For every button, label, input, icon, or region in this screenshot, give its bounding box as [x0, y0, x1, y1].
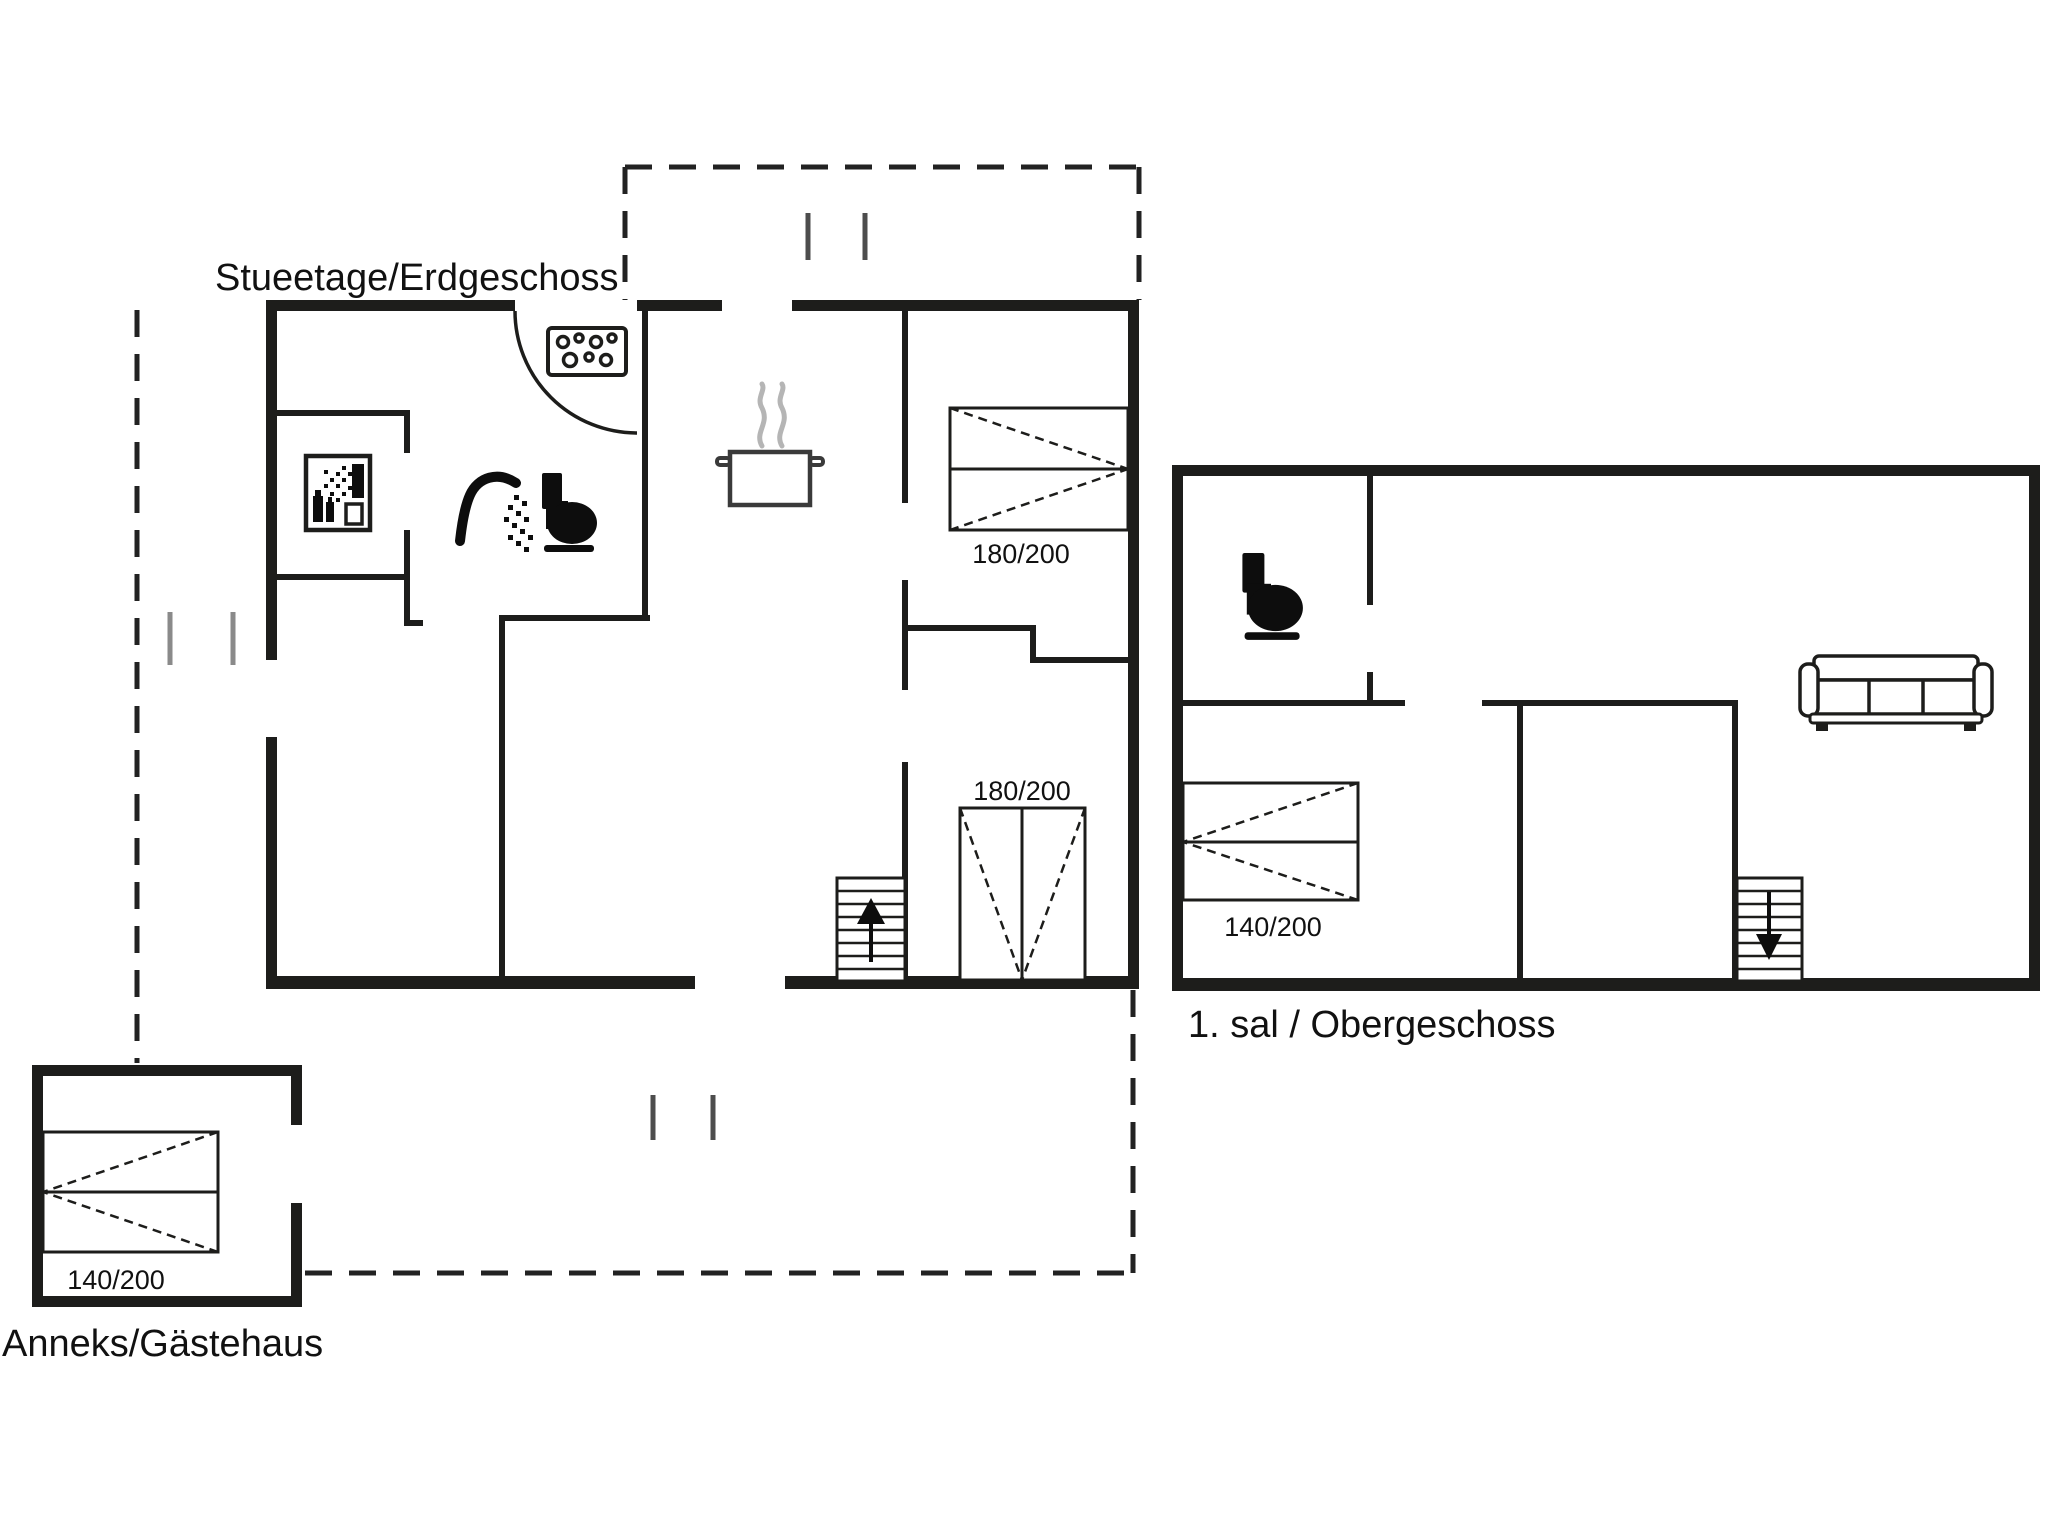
- bed-size-label: 140/200: [1224, 912, 1322, 942]
- floor-plan-drawing: 180/200 180/200 Stueetage/Erdgeschoss: [0, 0, 2048, 1536]
- upper-floor-label: 1. sal / Obergeschoss: [1188, 1004, 1556, 1046]
- bed-size-label: 180/200: [973, 776, 1071, 806]
- washing-machine-icon: [306, 456, 370, 530]
- toilet-icon: [542, 473, 597, 552]
- upper-floor-interior-walls: [1183, 476, 1738, 985]
- annex-plan: 140/200 Anneks/Gästehaus: [2, 1065, 323, 1365]
- double-bed-140-200-annex: [43, 1132, 218, 1252]
- terrace-south-dashed-outline: [305, 990, 1133, 1273]
- hob-icon: [548, 328, 626, 375]
- ground-floor-plan: 180/200 180/200 Stueetage/Erdgeschoss: [137, 167, 1139, 1273]
- upper-floor-plan: 140/200 1. sal / Obergeschoss: [1172, 465, 2040, 1046]
- stairs-up-icon: [837, 878, 905, 981]
- south-window-ticks: [653, 1095, 713, 1140]
- terrace-north-dashed-outline: [625, 167, 1139, 300]
- double-bed-180-200-east: [950, 408, 1128, 530]
- ground-floor-label: Stueetage/Erdgeschoss: [215, 257, 619, 299]
- stairs-down-icon: [1737, 878, 1802, 981]
- sofa-icon: [1800, 656, 1992, 731]
- double-bed-180-200-south: [960, 808, 1085, 980]
- bed-size-label: 180/200: [972, 539, 1070, 569]
- carport-window-ticks: [170, 612, 233, 665]
- toilet-icon: [1242, 553, 1303, 640]
- shower-spray-dots: [504, 495, 533, 552]
- terrace-window-ticks: [808, 213, 865, 260]
- shower-icon: [460, 477, 533, 552]
- steam-lines: [760, 384, 785, 446]
- annex-label: Anneks/Gästehaus: [2, 1323, 323, 1365]
- floor-plan-page: 180/200 180/200 Stueetage/Erdgeschoss: [0, 0, 2048, 1536]
- bed-size-label: 140/200: [67, 1265, 165, 1295]
- double-bed-140-200: [1183, 783, 1358, 900]
- cooking-pot-icon: [717, 384, 823, 505]
